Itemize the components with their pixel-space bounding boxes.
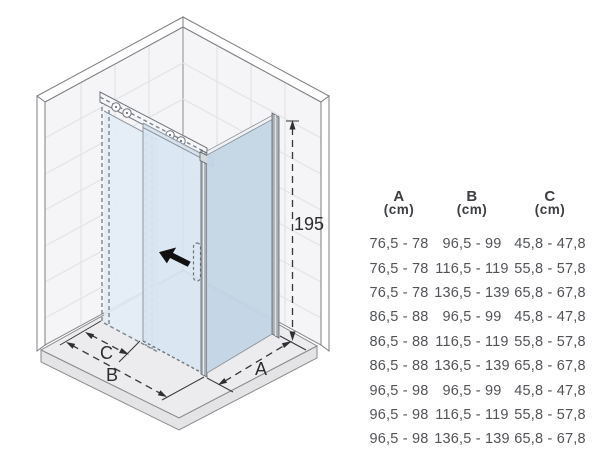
cell-b: 116,5 - 119	[433, 407, 511, 423]
size-table: A (cm) B (cm) C (cm) 76,5 - 78 96,5 - 99…	[365, 190, 589, 450]
cell-a: 76,5 - 78	[365, 236, 433, 252]
cell-a: 76,5 - 78	[365, 285, 433, 301]
cell-b: 136,5 - 139	[433, 285, 511, 301]
cell-a: 96,5 - 98	[365, 431, 433, 447]
size-table-body: 76,5 - 78 96,5 - 99 45,8 - 47,8 76,5 - 7…	[365, 232, 589, 450]
header-col-a: A (cm)	[365, 190, 433, 216]
cell-a: 96,5 - 98	[365, 407, 433, 423]
dim-b-label: B	[106, 365, 118, 385]
size-table-header: A (cm) B (cm) C (cm)	[365, 190, 589, 216]
cell-c: 45,8 - 47,8	[511, 309, 589, 325]
cell-b: 96,5 - 99	[433, 309, 511, 325]
cell-c: 65,8 - 67,8	[511, 358, 589, 374]
cell-a: 86,5 - 88	[365, 309, 433, 325]
cell-b: 136,5 - 139	[433, 431, 511, 447]
cell-a: 86,5 - 88	[365, 334, 433, 350]
shower-diagram: 195 C B A	[0, 0, 360, 450]
table-row: 76,5 - 78 116,5 - 119 55,8 - 57,8	[365, 256, 589, 280]
header-c-unit: (cm)	[511, 203, 589, 216]
header-col-b: B (cm)	[433, 190, 511, 216]
table-row: 86,5 - 88 116,5 - 119 55,8 - 57,8	[365, 330, 589, 354]
dim-c-label: C	[100, 343, 113, 363]
dim-a-label: A	[255, 359, 267, 379]
cell-c: 65,8 - 67,8	[511, 431, 589, 447]
cell-c: 65,8 - 67,8	[511, 285, 589, 301]
cell-b: 136,5 - 139	[433, 358, 511, 374]
cell-c: 55,8 - 57,8	[511, 407, 589, 423]
cell-c: 55,8 - 57,8	[511, 261, 589, 277]
table-row: 86,5 - 88 96,5 - 99 45,8 - 47,8	[365, 305, 589, 329]
table-row: 86,5 - 88 136,5 - 139 65,8 - 67,8	[365, 354, 589, 378]
cell-b: 96,5 - 99	[433, 383, 511, 399]
cell-c: 55,8 - 57,8	[511, 334, 589, 350]
side-panel-glass	[207, 113, 279, 373]
table-row: 96,5 - 98 136,5 - 139 65,8 - 67,8	[365, 427, 589, 450]
cell-b: 96,5 - 99	[433, 236, 511, 252]
header-col-c: C (cm)	[511, 190, 589, 216]
cell-b: 116,5 - 119	[433, 261, 511, 277]
cell-c: 45,8 - 47,8	[511, 236, 589, 252]
cell-c: 45,8 - 47,8	[511, 383, 589, 399]
side-pane	[207, 119, 273, 373]
cell-a: 96,5 - 98	[365, 383, 433, 399]
table-row: 76,5 - 78 136,5 - 139 65,8 - 67,8	[365, 281, 589, 305]
cell-a: 86,5 - 88	[365, 358, 433, 374]
cell-b: 116,5 - 119	[433, 334, 511, 350]
height-dimension-label: 195	[294, 214, 324, 234]
header-b-unit: (cm)	[433, 203, 511, 216]
cell-a: 76,5 - 78	[365, 261, 433, 277]
table-row: 76,5 - 78 96,5 - 99 45,8 - 47,8	[365, 232, 589, 256]
shower-enclosure-spec-sheet: 195 C B A	[0, 0, 600, 450]
table-row: 96,5 - 98 96,5 - 99 45,8 - 47,8	[365, 378, 589, 402]
header-a-unit: (cm)	[365, 203, 433, 216]
table-row: 96,5 - 98 116,5 - 119 55,8 - 57,8	[365, 403, 589, 427]
left-wall-end-face	[37, 96, 45, 351]
